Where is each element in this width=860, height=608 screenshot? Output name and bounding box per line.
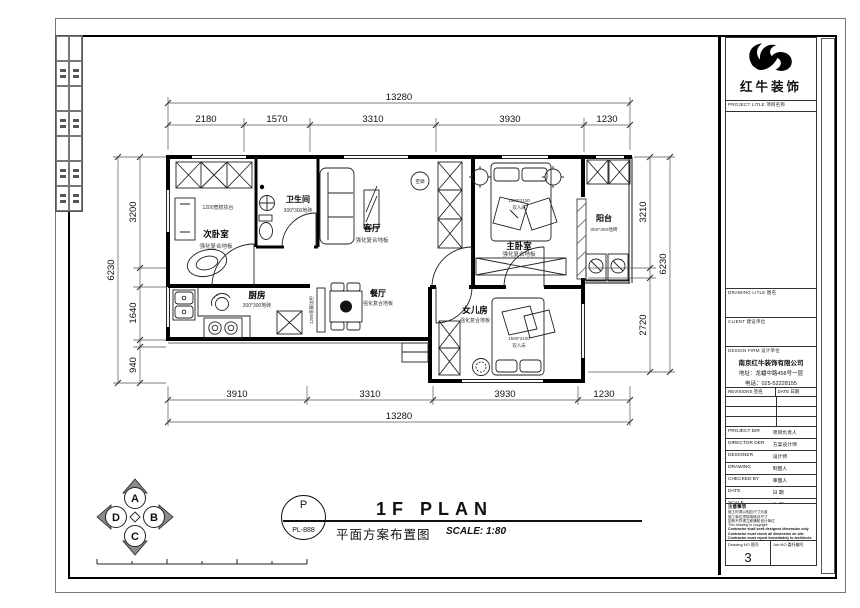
floor-label-dining: 强化复合地板 xyxy=(363,300,393,307)
row-project-dir: PROJECT DIR 项目负责人 xyxy=(726,427,816,439)
ac-label: 空调 xyxy=(416,178,425,185)
firm-phone: 电话：025-52228155 xyxy=(726,379,816,387)
row-cn: 项目负责人 xyxy=(773,429,797,436)
floor-label-living: 强化复合地板 xyxy=(355,236,389,244)
dim-left-3: 940 xyxy=(128,357,139,373)
job-no-label: Job NO 委托编号 xyxy=(771,541,816,549)
dimension-ticks xyxy=(115,100,673,425)
row-cn: 制图人 xyxy=(773,465,787,472)
title-block-margin-column xyxy=(821,38,835,574)
drawing-title-label: DRAWING LITLE 图名 xyxy=(726,289,816,296)
dim-bottom-total: 13280 xyxy=(386,411,412,422)
row-cn: 方案设计师 xyxy=(773,441,797,448)
compass-letter-s: C xyxy=(131,531,139,543)
row-designer: DESIGNER 设计师 xyxy=(726,451,816,463)
dim-right-1: 3210 xyxy=(638,201,649,222)
dim-bottom-4: 1230 xyxy=(593,389,614,400)
title-underline xyxy=(283,520,642,522)
dim-top-4: 3930 xyxy=(499,114,520,125)
client-row: CLIENT 建设单位 xyxy=(725,317,817,347)
project-title-label: PROJECT LITLE 项目名称 xyxy=(726,101,816,108)
revisions-date-label: DATE 日期 xyxy=(776,388,802,396)
row-en: DRAWING xyxy=(728,465,751,470)
row-en: DESIGNER xyxy=(728,453,753,458)
design-firm-label: DESIGN FIRM 设计单位 xyxy=(726,347,816,354)
floor-label-master-bedroom: 强化复合地板 xyxy=(502,250,536,258)
plan-title-cn: 平面方案布置图 xyxy=(336,524,431,543)
furniture-bathroom xyxy=(259,185,275,240)
compass-letter-e: B xyxy=(150,512,158,524)
furniture-kitchen xyxy=(173,287,428,362)
revisions-label: REVISIONS 签名 xyxy=(726,388,776,396)
revision-row xyxy=(726,397,816,407)
logo-box: 红牛装饰 xyxy=(725,37,817,101)
floor-label-second-bedroom: 强化复合地板 xyxy=(199,242,233,250)
row-en: DIRECTOR DER xyxy=(728,441,764,446)
row-en: PROJECT DIR xyxy=(728,429,760,434)
dim-bottom-1: 3910 xyxy=(226,389,247,400)
room-label-dining: 餐厅 xyxy=(369,288,386,298)
room-label-master-bedroom: 主卧室 xyxy=(506,241,532,251)
room-label-balcony: 阳台 xyxy=(596,213,612,223)
row-cn: 日 期 xyxy=(773,489,784,496)
dim-bottom-2: 3310 xyxy=(359,389,380,400)
bed-type-master: 双人床 xyxy=(512,204,526,211)
stamp-code: PL-888 xyxy=(282,527,325,534)
row-cn: 审图人 xyxy=(773,477,787,484)
row-checked: CHECKED BY 审图人 xyxy=(726,475,816,487)
room-label-kitchen: 厨房 xyxy=(248,290,265,300)
row-en: CHECKED BY xyxy=(728,477,759,482)
dim-top-5: 1230 xyxy=(596,114,617,125)
compass-letter-n: A xyxy=(131,493,139,505)
row-en: DATE xyxy=(728,489,740,494)
number-row: Drawing NO 图号 3 Job NO 委托编号 xyxy=(725,540,817,566)
logo-company-name: 红牛装饰 xyxy=(726,76,816,95)
dim-right-2: 2720 xyxy=(638,314,649,335)
drawing-sheet: 次卧室 强化复合地板 1200宽梳妆台 卫生间 300*300地砖 客厅 强化复… xyxy=(0,0,860,608)
room-label-bathroom: 卫生间 xyxy=(286,194,310,204)
room-label-second-bedroom: 次卧室 xyxy=(203,229,229,239)
client-label: CLIENT 建设单位 xyxy=(726,318,816,325)
drawing-title-row: DRAWING LITLE 图名 xyxy=(725,288,817,318)
row-cn: 设计师 xyxy=(773,453,787,460)
orientation-compass: A B C D xyxy=(95,477,175,557)
dim-right-outer: 6230 xyxy=(658,253,669,274)
dim-top-1: 2180 xyxy=(195,114,216,125)
room-labels: 次卧室 强化复合地板 1200宽梳妆台 卫生间 300*300地砖 客厅 强化复… xyxy=(199,178,617,349)
floor-plan: 次卧室 强化复合地板 1200宽梳妆台 卫生间 300*300地砖 客厅 强化复… xyxy=(100,90,678,435)
note-second-bedroom: 1200宽梳妆台 xyxy=(202,204,233,211)
drawing-number-stamp: P PL-888 xyxy=(281,495,326,540)
row-drawing: DRAWING 制图人 xyxy=(726,463,816,475)
graphic-scale-bar xyxy=(95,556,310,570)
floor-label-girls-room: 强化复合地板 xyxy=(460,317,490,324)
plan-scale: SCALE: 1:80 xyxy=(446,526,506,537)
floor-label-kitchen: 300*300地砖 xyxy=(243,302,272,309)
furniture-second-bedroom xyxy=(175,162,252,281)
row-director: DIRECTOR DER 方案设计师 xyxy=(726,439,816,451)
drawing-no-value: 3 xyxy=(726,550,770,565)
title-block: 红牛装饰 PROJECT LITLE 项目名称 DRAWING LITLE 图名… xyxy=(718,35,836,575)
dim-left-outer: 6230 xyxy=(106,259,117,280)
margin-revision-strip xyxy=(55,35,83,212)
dim-left-1: 3200 xyxy=(128,201,139,222)
bull-logo-icon xyxy=(731,39,811,75)
firm-name: 南京红牛装饰有限公司 xyxy=(726,357,816,367)
dim-top-total: 13280 xyxy=(386,92,412,103)
project-title-space xyxy=(725,111,817,289)
stamp-letter: P xyxy=(282,499,325,511)
bed-size-master: 1500*2100 xyxy=(508,198,530,203)
row-date: DATE 日 期 xyxy=(726,487,816,499)
dim-left-2: 1640 xyxy=(128,302,139,323)
walls-exterior xyxy=(168,155,632,383)
room-label-girls-room: 女儿房 xyxy=(462,305,488,315)
compass-center-diamond xyxy=(130,512,140,522)
dim-top-2: 1570 xyxy=(266,114,287,125)
revision-row xyxy=(726,417,816,426)
design-firm-box: DESIGN FIRM 设计单位 南京红牛装饰有限公司 地址：龙蟠中路458号一… xyxy=(725,346,817,388)
signature-rows: PROJECT DIR 项目负责人 DIRECTOR DER 方案设计师 DES… xyxy=(725,426,817,504)
furniture-master-bedroom xyxy=(469,163,566,275)
compass-letter-w: D xyxy=(112,512,120,524)
windows xyxy=(167,156,632,383)
balcony-sliding-door xyxy=(577,199,586,279)
notes-title: 注意事项 xyxy=(728,505,814,509)
revision-row xyxy=(726,407,816,417)
drawing-no-label: Drawing NO 图号 xyxy=(726,541,770,549)
notes-box: 注意事项 施工时请以相应尺寸为准 施工单位须现场核对尺寸 如有不符请立即通知设计… xyxy=(725,503,817,541)
bed-size-girls: 1500*2100 xyxy=(508,336,530,341)
plan-title-en: 1F PLAN xyxy=(376,499,493,520)
furniture-dining xyxy=(317,283,362,332)
room-label-living: 客厅 xyxy=(362,223,381,233)
furniture-girls-room xyxy=(439,298,555,376)
floor-label-balcony: 300*300地砖 xyxy=(590,226,618,233)
bed-type-girls: 双人床 xyxy=(512,342,526,349)
furniture-living xyxy=(320,162,462,248)
firm-address: 地址：龙蟠中路458号一层 xyxy=(726,369,816,377)
dim-bottom-3: 3930 xyxy=(494,389,515,400)
dim-top-3: 3310 xyxy=(362,114,383,125)
floor-label-bathroom: 300*300地砖 xyxy=(284,207,313,214)
note-dining: 1200宽餐边柜 xyxy=(308,295,315,324)
revisions-table: REVISIONS 签名 DATE 日期 xyxy=(725,387,817,427)
